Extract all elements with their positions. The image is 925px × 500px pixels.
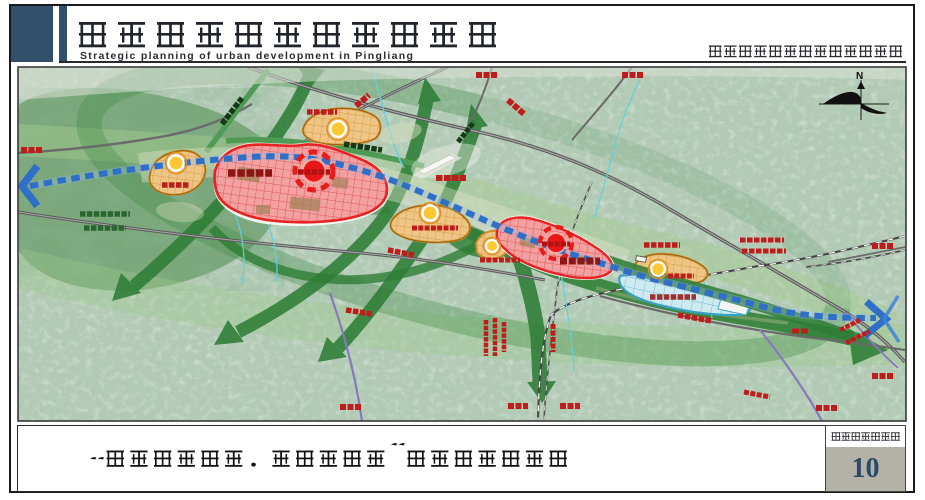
- svg-text:N: N: [856, 71, 863, 82]
